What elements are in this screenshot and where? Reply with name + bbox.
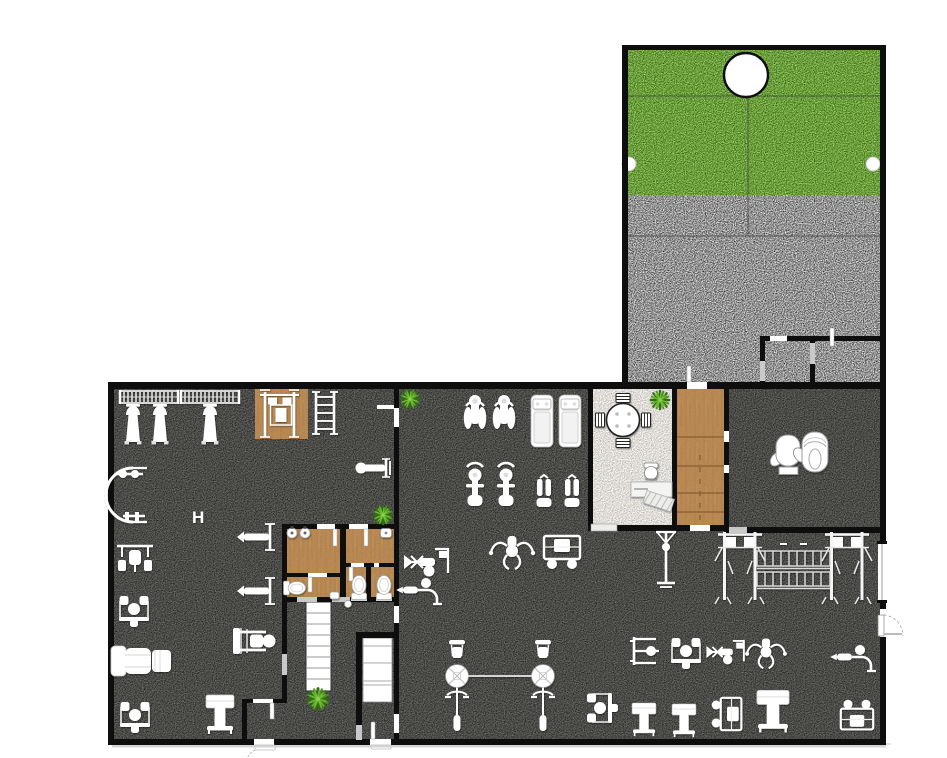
svg-text:H: H <box>192 508 204 527</box>
